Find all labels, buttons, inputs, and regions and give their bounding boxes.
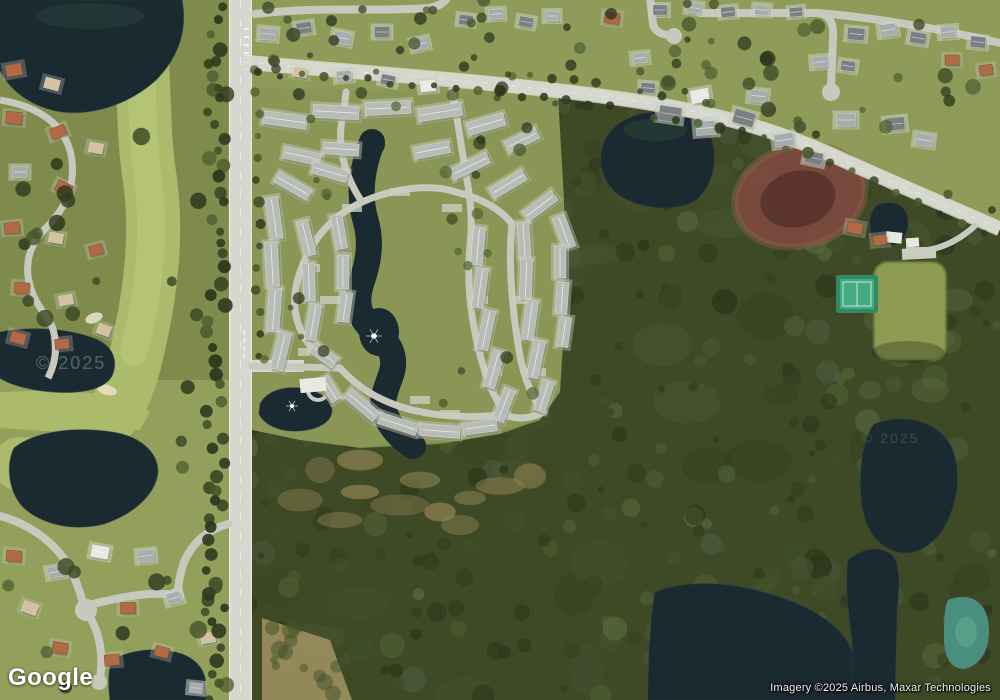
house bbox=[945, 55, 959, 65]
parking-pad bbox=[390, 188, 410, 196]
house bbox=[979, 64, 993, 76]
lake-bottom-right-arm bbox=[847, 549, 899, 700]
pond-fountain bbox=[290, 404, 294, 408]
house bbox=[6, 111, 23, 124]
house bbox=[121, 603, 136, 614]
parking-pad bbox=[342, 204, 362, 212]
parking-pad bbox=[410, 396, 430, 404]
house bbox=[55, 338, 70, 349]
pond-fountain bbox=[371, 333, 377, 339]
house bbox=[847, 221, 864, 234]
parking-pad bbox=[440, 410, 460, 418]
house bbox=[873, 234, 887, 245]
house bbox=[4, 222, 20, 234]
house bbox=[104, 654, 120, 666]
park-building bbox=[906, 238, 920, 248]
pond-condo-sw bbox=[259, 388, 332, 431]
clubhouse bbox=[299, 377, 326, 393]
house bbox=[58, 294, 74, 306]
park-parking bbox=[902, 247, 937, 260]
house bbox=[52, 641, 69, 654]
house bbox=[88, 142, 104, 154]
parking-pad bbox=[442, 204, 462, 212]
satellite-imagery bbox=[0, 0, 1000, 700]
satellite-map-canvas[interactable]: © 2025 © 2025 Google Imagery ©2025 Airbu… bbox=[0, 0, 1000, 700]
house bbox=[6, 550, 22, 562]
google-logo[interactable]: Google bbox=[8, 664, 93, 692]
house bbox=[48, 232, 64, 244]
house bbox=[14, 282, 30, 294]
house bbox=[5, 63, 23, 78]
imagery-attribution: Imagery ©2025 Airbus, Maxar Technologies bbox=[770, 682, 991, 694]
